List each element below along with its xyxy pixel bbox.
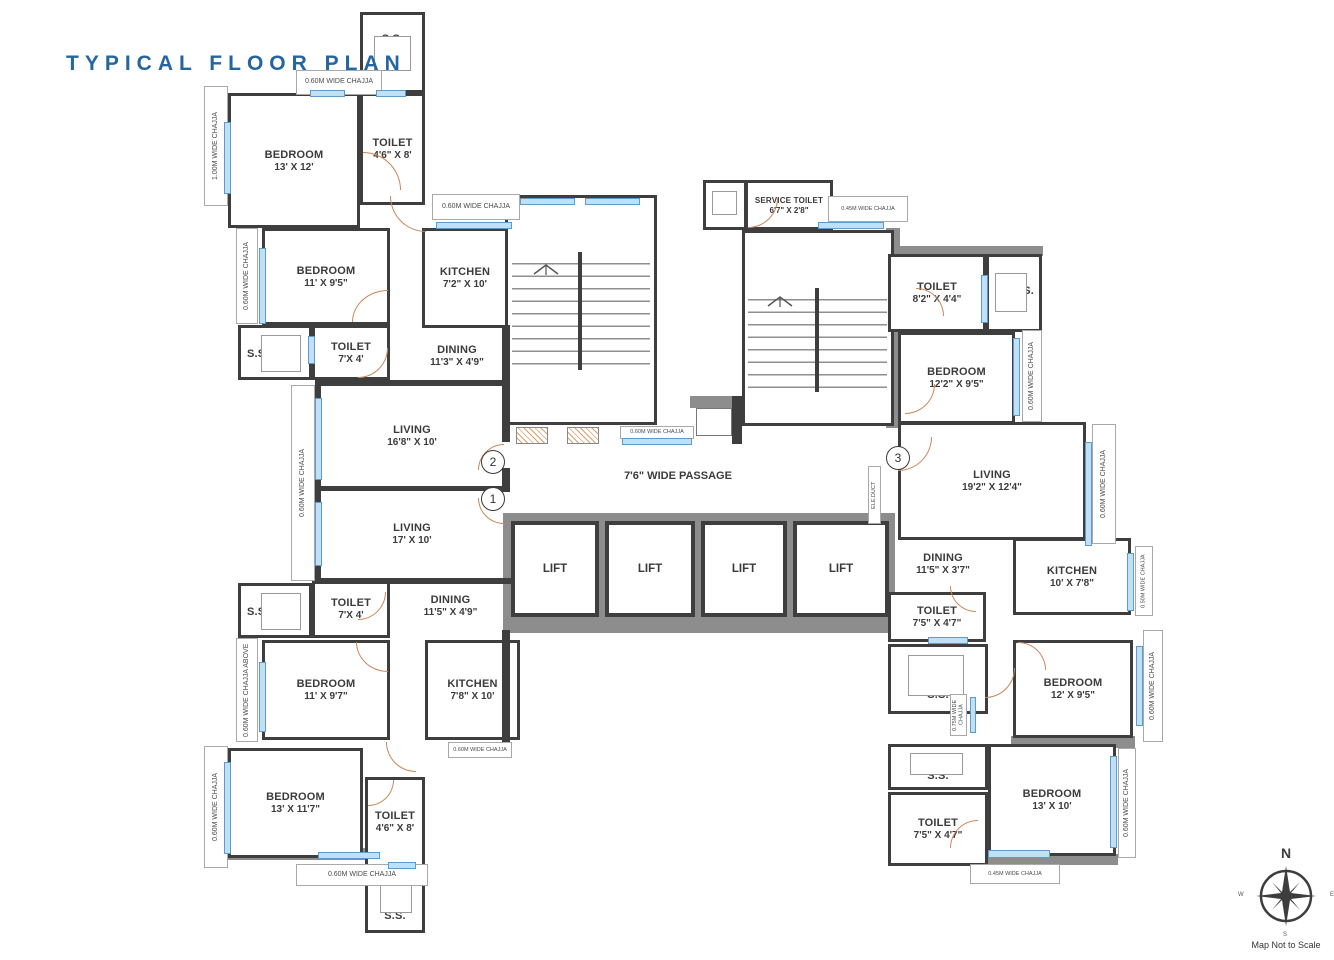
duct-hatch [567, 427, 599, 444]
window [436, 222, 512, 229]
room-bedroom-13x12: BEDROOM 13' X 12' [228, 93, 360, 228]
ss-fixture [261, 335, 300, 371]
window [1110, 756, 1117, 848]
window [315, 398, 322, 480]
window [259, 248, 266, 324]
ss-fixture [995, 273, 1027, 312]
window [310, 90, 345, 97]
room-kitchen-72x10: KITCHEN 7'2" X 10' [422, 228, 508, 328]
window [315, 502, 322, 566]
door-swing [386, 742, 416, 772]
stairs-direction-arrow [532, 262, 560, 276]
chajja-label: 0.60M WIDE CHAJJA ABOVE [236, 638, 258, 742]
window [988, 850, 1050, 858]
door-swing [390, 196, 426, 232]
stairs-direction-arrow [766, 294, 794, 308]
window [818, 222, 884, 229]
window [259, 662, 266, 732]
lift-3: LIFT [701, 521, 787, 617]
passage-label: 7'6" WIDE PASSAGE [588, 470, 768, 486]
compass-south-label: S [1283, 932, 1287, 938]
floor-plan: 0.60M WIDE CHAJJA S.S. BEDROOM 13' X 12'… [0, 0, 1334, 960]
wall [318, 486, 506, 491]
window [1013, 338, 1020, 416]
compass-east-label: E [1330, 892, 1334, 898]
window [1136, 646, 1143, 726]
ss-room: S.S. [238, 325, 312, 380]
chajja-label: 0.45M WIDE CHAJJA [970, 864, 1060, 884]
duct-hatch [516, 427, 548, 444]
stairs-divider [578, 252, 582, 370]
wall [502, 325, 510, 382]
area-living-168x10: LIVING 16'8" X 10' [322, 388, 502, 483]
area-dining-113x49: DINING 11'3" X 4'9" [398, 332, 516, 380]
chajja-label: 0.60M WIDE CHAJJA [1092, 424, 1116, 544]
wall [502, 382, 510, 442]
duct-room [703, 180, 747, 230]
window [622, 438, 692, 445]
ss-fixture [910, 753, 964, 775]
stairs-divider [815, 288, 819, 392]
window [224, 762, 231, 854]
duct-box [696, 408, 732, 436]
window [388, 862, 416, 869]
chajja-label: 0.60M WIDE CHAJJA [1118, 748, 1136, 858]
ss-room: S.S. [238, 583, 312, 638]
chajja-label: 0.60M WIDE CHAJJA [432, 194, 520, 220]
window [981, 275, 988, 323]
lift-4: LIFT [793, 521, 889, 617]
wall [315, 578, 513, 584]
chajja-label: 0.75M WIDE CHAJJA [950, 694, 967, 736]
room-toilet-82x44: TOILET 8'2" X 4'4" [888, 254, 986, 332]
lift-2: LIFT [605, 521, 695, 617]
ss-fixture [908, 655, 965, 697]
door-marker-1: 1 [481, 487, 505, 511]
wall [315, 380, 510, 386]
window [585, 198, 640, 205]
area-dining-115x37: DINING 11'5" X 3'7" [893, 540, 993, 588]
window [376, 90, 406, 97]
window [1127, 553, 1134, 611]
area-dining-115x49: DINING 11'5" X 4'9" [398, 580, 503, 632]
ss-fixture [261, 593, 300, 629]
window [928, 637, 968, 644]
lift-1: LIFT [511, 521, 599, 617]
door-swing [985, 668, 1015, 698]
chajja-label: 0.50M WIDE CHAJJA [1135, 546, 1153, 616]
ss-room: S.S. [888, 744, 988, 790]
wall [732, 396, 742, 444]
duct-label: ELE.DUCT [868, 466, 881, 524]
wall [502, 630, 510, 745]
compass-rose: N W E S Map Not to Scale [1242, 846, 1330, 950]
ss-room: S.S. [986, 254, 1042, 332]
window [308, 336, 315, 364]
chajja-label: 0.60M WIDE CHAJJA [1022, 330, 1042, 422]
chajja-label: 0.60M WIDE CHAJJA [448, 742, 512, 758]
room-bedroom-13x10: BEDROOM 13' X 10' [988, 744, 1116, 856]
door-marker-3: 3 [886, 446, 910, 470]
chajja-label: 0.60M WIDE CHAJJA [1143, 630, 1163, 742]
chajja-label: 0.45M WIDE CHAJJA [828, 196, 908, 222]
window [224, 122, 231, 194]
window [1085, 442, 1092, 546]
chajja-label: 0.60M WIDE CHAJJA [291, 385, 315, 581]
window [318, 852, 380, 859]
compass-star [1251, 861, 1321, 931]
window [520, 198, 575, 205]
page-title: TYPICAL FLOOR PLAN [66, 52, 406, 76]
duct-fixture [712, 191, 738, 215]
compass-north-label: N [1242, 846, 1330, 860]
door-marker-2: 2 [481, 450, 505, 474]
area-living-17x10: LIVING 17' X 10' [322, 492, 502, 576]
compass-west-label: W [1238, 892, 1244, 898]
room-bedroom-13x117: BEDROOM 13' X 11'7" [228, 748, 363, 858]
room-kitchen-10x78: KITCHEN 10' X 7'8" [1013, 538, 1131, 615]
chajja-label: 0.60M WIDE CHAJJA [236, 228, 258, 324]
wall [502, 468, 510, 492]
window [970, 697, 976, 733]
map-scale-note: Map Not to Scale [1242, 940, 1330, 950]
